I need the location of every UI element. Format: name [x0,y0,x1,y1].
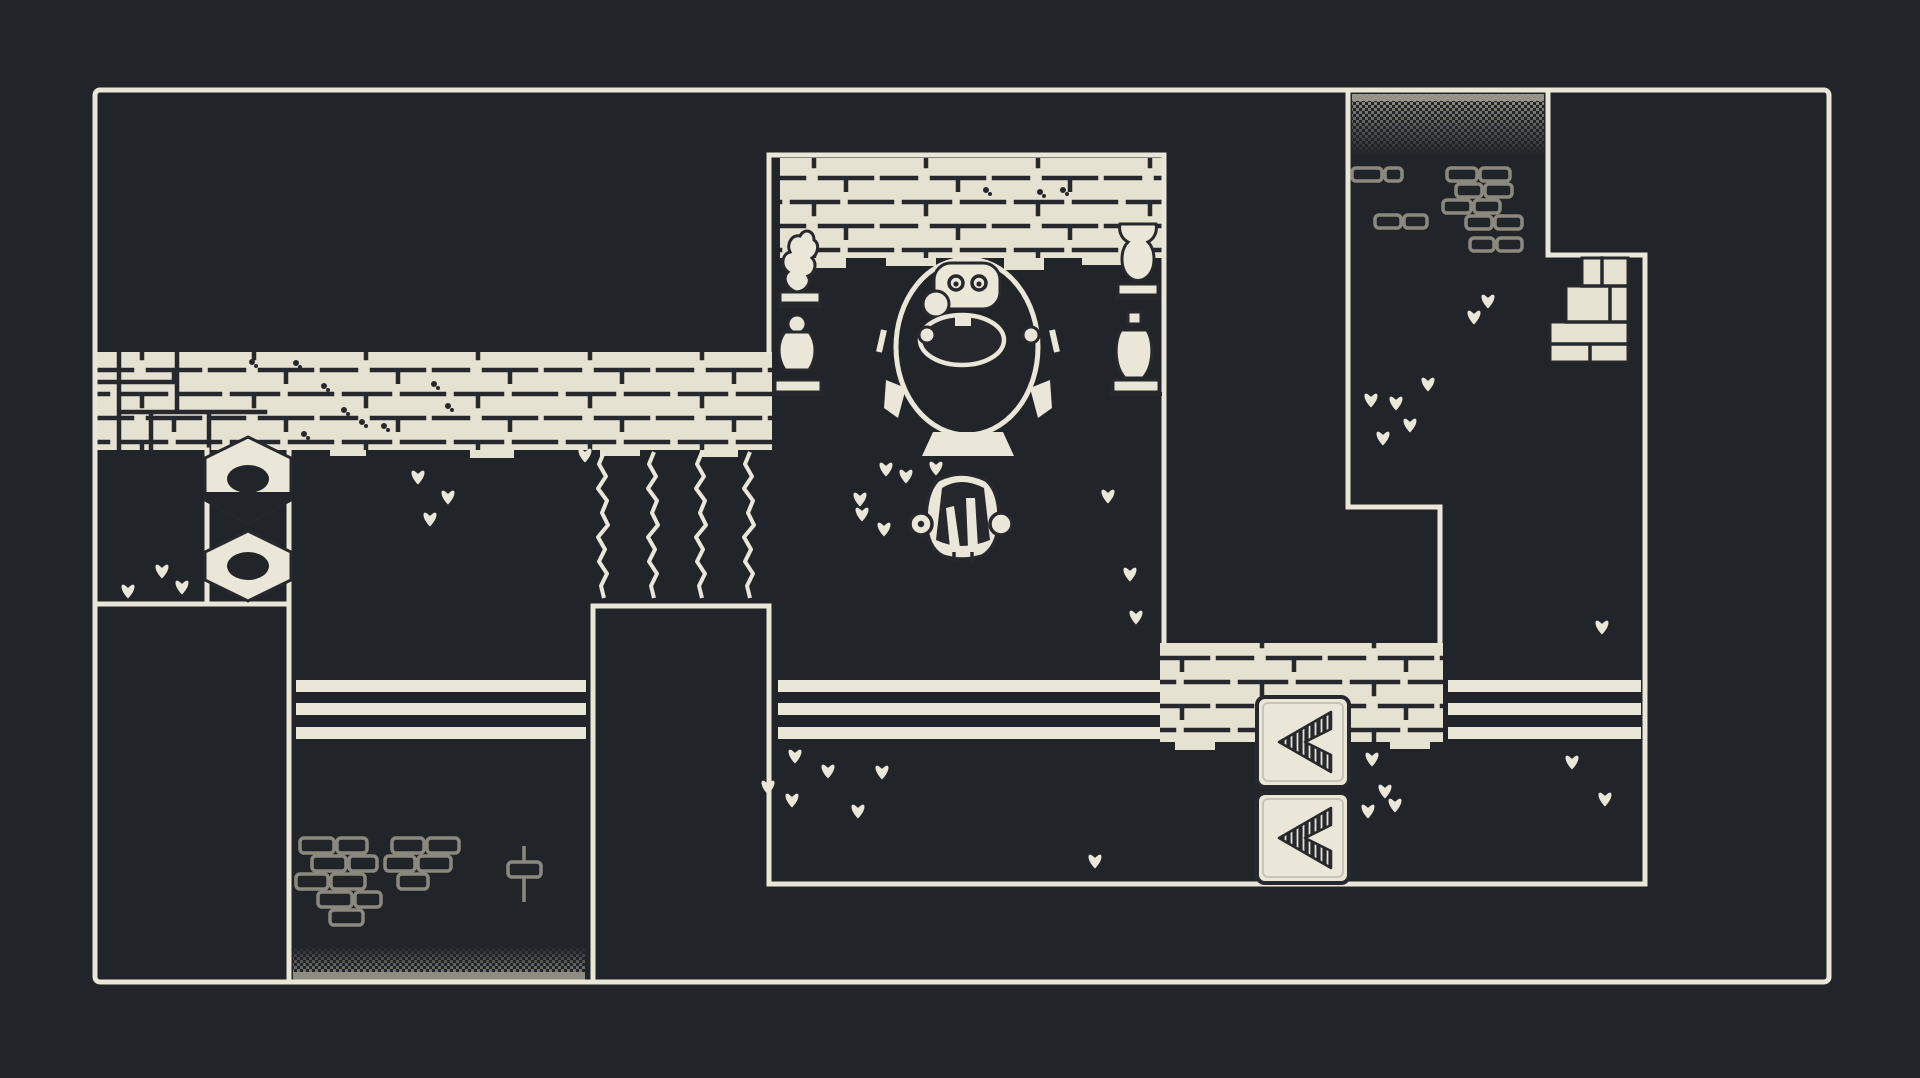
game-viewport[interactable] [0,0,1920,1078]
player-hand-right [990,513,1012,535]
central-room-brick-lintel [780,158,1164,258]
arrow-tile-top [1257,697,1349,787]
arrow-tile-bottom [1257,793,1349,883]
waterfall-dither-top-right [1352,94,1544,156]
game-scene [0,0,1920,1078]
left-brick-wall [95,352,772,450]
torch-right [1115,224,1161,298]
dither-strip-bottom-left [293,946,585,983]
